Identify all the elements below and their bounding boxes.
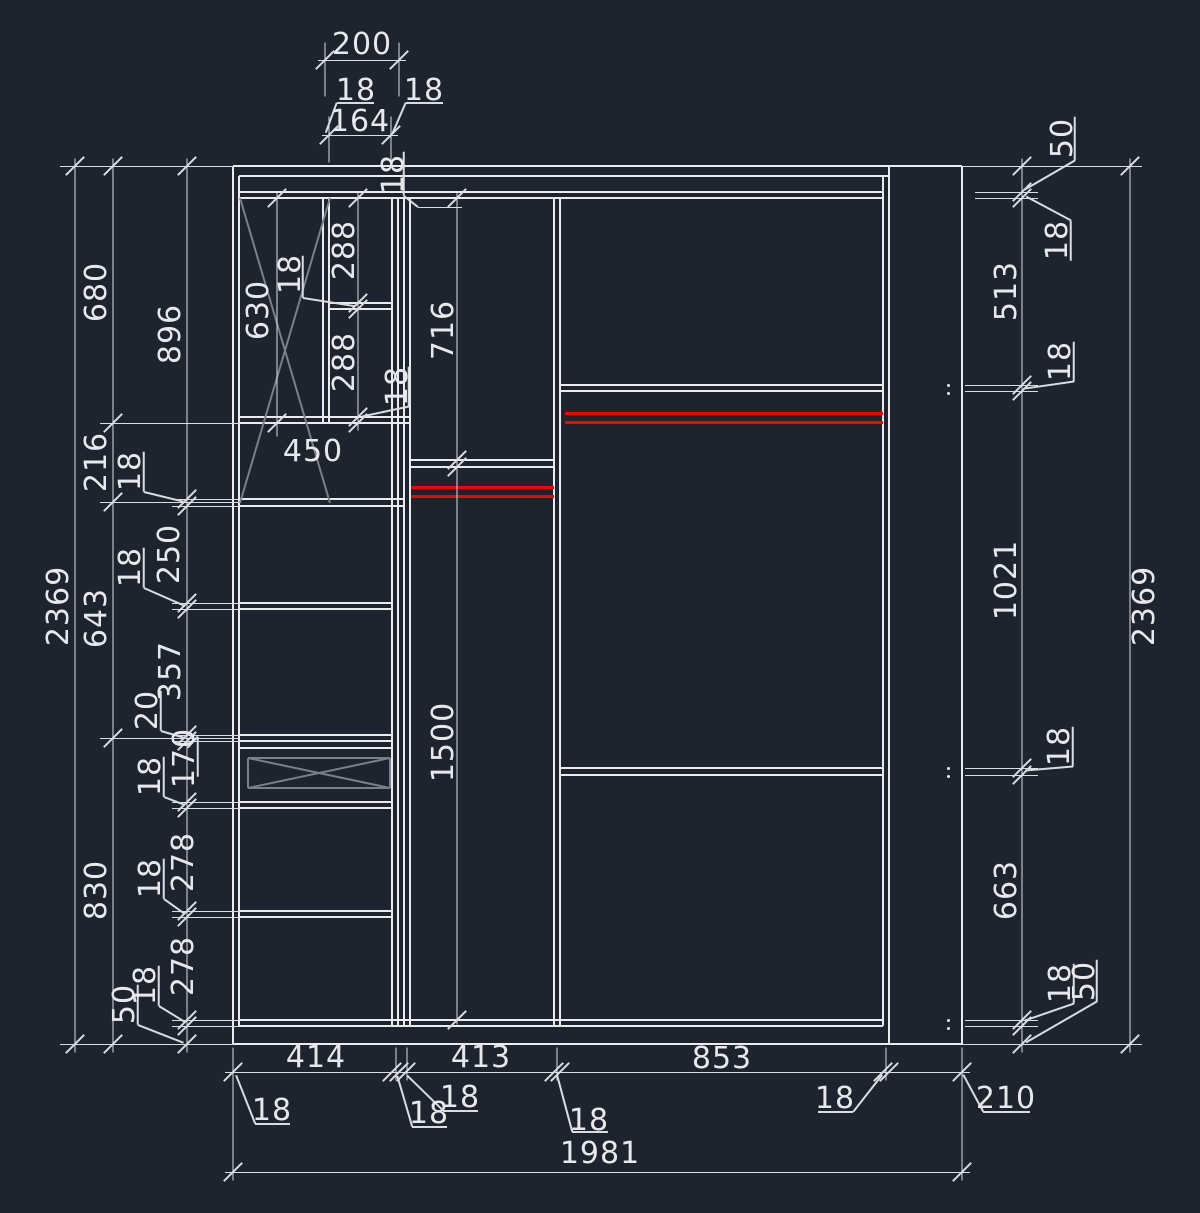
cad-line	[239, 505, 405, 507]
accent-line	[565, 421, 883, 424]
dimension-label: 164	[330, 107, 390, 137]
cad-line	[239, 807, 392, 809]
aux-line	[247, 758, 249, 788]
cad-line	[239, 916, 392, 918]
cad-line	[329, 308, 392, 310]
dimension-label: 18	[136, 858, 166, 898]
cad-line	[391, 198, 393, 1026]
dimension-label: 716	[429, 300, 459, 360]
cad-line	[239, 191, 883, 193]
aux-line	[248, 787, 390, 789]
cad-line	[965, 775, 1038, 776]
cad-line	[965, 391, 1038, 392]
aux-line	[248, 757, 390, 759]
cad-line	[239, 1019, 883, 1021]
dimension-label: 18	[116, 451, 146, 491]
dimension-label: 288	[330, 332, 360, 392]
dimension-label: 20	[133, 690, 163, 730]
dimension-label: 2369	[1130, 566, 1160, 646]
cad-line	[239, 175, 889, 177]
aux-line	[389, 758, 391, 788]
dimension-label: 200	[332, 30, 392, 60]
cad-line	[100, 502, 239, 503]
dimension-label: 18	[404, 76, 444, 106]
reference-dot	[947, 775, 950, 778]
cad-line	[225, 1172, 970, 1173]
dimension-label: 414	[286, 1043, 346, 1073]
dimension-label: 18	[116, 547, 146, 587]
cad-line	[560, 384, 883, 386]
cad-line	[172, 506, 239, 507]
dimension-label: 450	[283, 437, 343, 467]
dimension-label: 413	[451, 1043, 511, 1073]
cad-line	[403, 198, 405, 1026]
dimension-label: 18	[252, 1096, 292, 1126]
cad-line	[277, 192, 278, 436]
cad-line	[239, 747, 392, 749]
cad-drawing-viewport: 2001818164186808966301828828818716450236…	[0, 0, 1200, 1213]
dimension-label: 50	[1048, 118, 1078, 158]
dimension-label: 643	[82, 588, 112, 648]
cad-line	[961, 166, 963, 1044]
cad-line	[144, 587, 186, 606]
reference-dot	[947, 392, 950, 395]
cad-line	[399, 42, 400, 96]
cad-line	[164, 898, 186, 914]
dimension-label: 210	[976, 1084, 1036, 1114]
dimension-label: 278	[169, 936, 199, 996]
cad-line	[239, 910, 392, 912]
cad-line	[560, 390, 883, 392]
accent-line	[565, 412, 883, 415]
cad-line	[962, 1047, 963, 1180]
dimension-label: 18	[379, 154, 409, 194]
cad-line	[325, 42, 326, 96]
accent-line	[411, 486, 554, 489]
dimension-label: 830	[82, 860, 112, 920]
cad-line	[553, 198, 555, 1026]
dimension-label: 853	[692, 1044, 752, 1074]
cad-line	[888, 166, 890, 1044]
dimension-label: 18	[815, 1084, 855, 1114]
cad-line	[962, 1044, 1142, 1045]
dimension-label: 18	[1045, 726, 1075, 766]
cad-line	[239, 602, 392, 604]
dimension-label: 680	[82, 262, 112, 322]
cad-line	[60, 166, 233, 167]
dimension-label: 18	[569, 1106, 609, 1136]
dimension-label: 250	[155, 524, 185, 584]
cad-line	[238, 176, 240, 1026]
cad-line	[322, 198, 324, 423]
cad-line	[410, 466, 554, 468]
dimension-label: 2369	[44, 566, 74, 646]
reference-dot	[947, 767, 950, 770]
dimension-label: 630	[244, 280, 274, 340]
dimension-label: 18	[1043, 220, 1073, 260]
reference-dot	[947, 384, 950, 387]
cad-line	[239, 801, 392, 803]
cad-line	[965, 1026, 1038, 1027]
cad-line	[560, 774, 883, 776]
cad-line	[239, 608, 392, 610]
dimension-label: 18	[383, 366, 413, 406]
cad-line	[882, 176, 884, 1026]
cad-line	[410, 459, 554, 461]
cad-line	[239, 1025, 883, 1027]
cad-line	[239, 740, 392, 742]
cad-line	[60, 1044, 233, 1045]
dimension-label: 18	[336, 76, 376, 106]
dimension-label: 50	[110, 984, 140, 1024]
dimension-label: 50	[1070, 961, 1100, 1001]
dimension-label: 663	[992, 860, 1022, 920]
dimension-label: 513	[992, 261, 1022, 321]
cad-line	[397, 198, 399, 1026]
cad-line	[233, 1047, 234, 1180]
cad-line	[559, 198, 561, 1026]
cad-line	[418, 207, 462, 208]
cad-line	[409, 198, 411, 1026]
accent-line	[411, 495, 554, 498]
dimension-label: 288	[330, 220, 360, 280]
dimension-label: 1981	[560, 1139, 640, 1169]
dimension-label: 1021	[992, 540, 1022, 620]
dimension-label: 170	[170, 728, 200, 788]
cad-line	[100, 423, 239, 424]
dimension-label: 216	[82, 432, 112, 492]
cad-line	[962, 166, 1142, 167]
dimension-label: 18	[1046, 341, 1076, 381]
cad-line	[560, 767, 883, 769]
cad-line	[239, 734, 392, 736]
reference-dot	[947, 1019, 950, 1022]
dimension-label: 278	[169, 832, 199, 892]
dimension-label: 18	[440, 1083, 480, 1113]
reference-dot	[947, 1027, 950, 1030]
dimension-label: 896	[156, 304, 186, 364]
dimension-label: 18	[276, 254, 306, 294]
cad-line	[1026, 196, 1072, 221]
dimension-label: 1500	[429, 702, 459, 782]
dimension-label: 18	[136, 756, 166, 796]
cad-line	[239, 197, 883, 199]
cad-line	[232, 166, 234, 1044]
cad-line	[233, 165, 962, 167]
cad-line	[239, 498, 405, 500]
